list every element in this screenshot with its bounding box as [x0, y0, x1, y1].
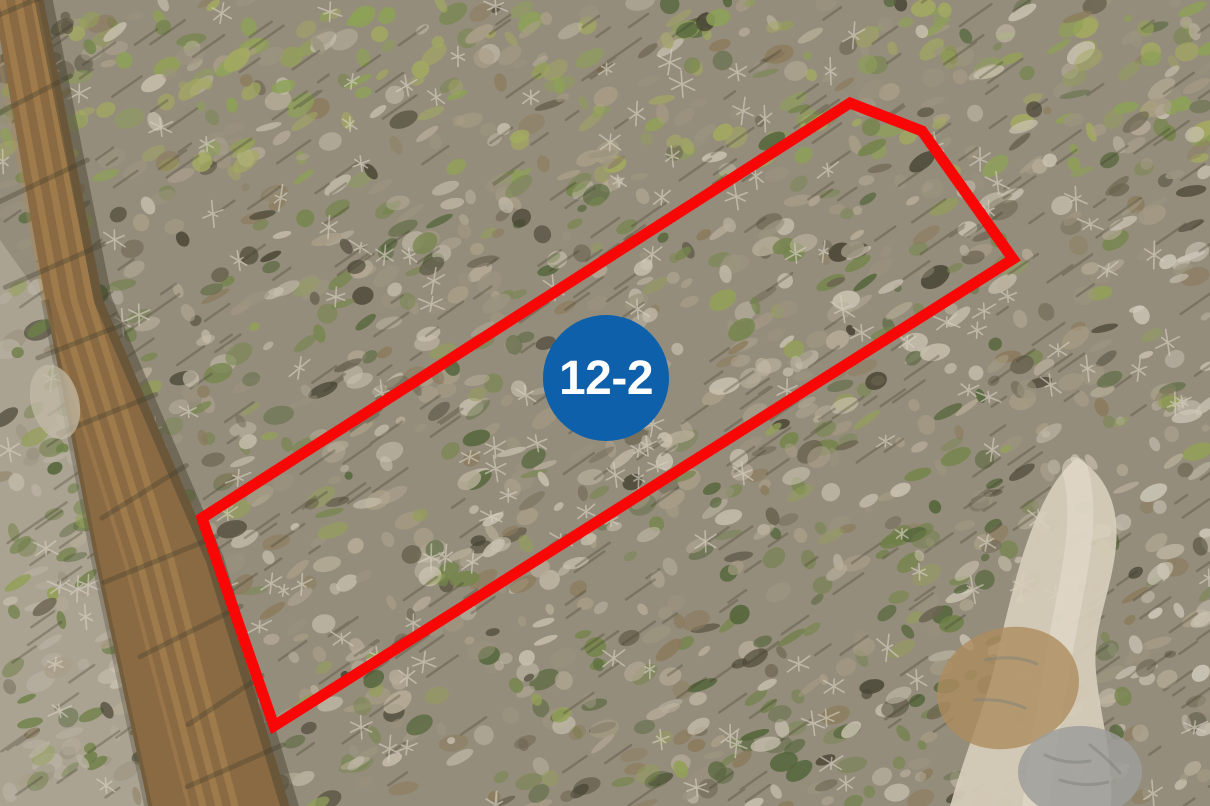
lot-aerial-image: 12-2: [0, 0, 1210, 806]
lot-badge: 12-2: [543, 315, 669, 441]
lot-badge-label: 12-2: [559, 351, 653, 406]
